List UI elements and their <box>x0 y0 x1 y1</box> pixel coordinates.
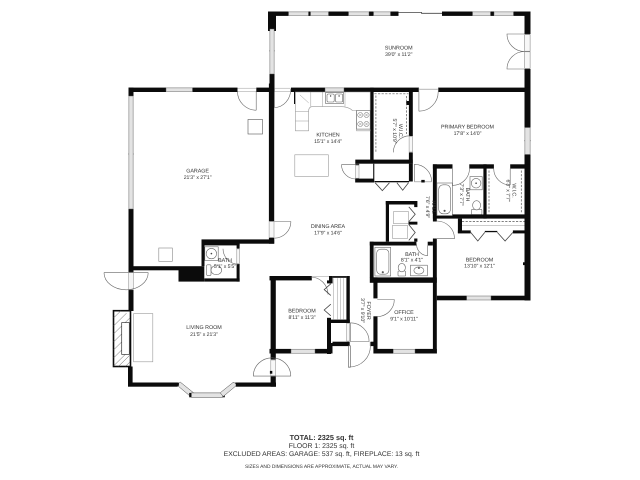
svg-text:17'8" x 14'0": 17'8" x 14'0" <box>454 131 482 137</box>
svg-text:39'0" x 11'2": 39'0" x 11'2" <box>385 52 413 58</box>
svg-text:8'11" x 11'3": 8'11" x 11'3" <box>288 315 315 321</box>
svg-text:GARAGE: GARAGE <box>186 169 209 175</box>
svg-text:BEDROOM: BEDROOM <box>466 257 494 263</box>
svg-text:9'1" x 10'11": 9'1" x 10'11" <box>390 317 418 323</box>
svg-text:17'9" x 14'6": 17'9" x 14'6" <box>314 230 342 236</box>
svg-text:7'3" x 7'7": 7'3" x 7'7" <box>458 183 464 205</box>
svg-text:BEDROOM: BEDROOM <box>288 309 316 315</box>
svg-text:21'3" x 27'1": 21'3" x 27'1" <box>184 175 212 181</box>
svg-text:DINING AREA: DINING AREA <box>311 224 346 230</box>
svg-text:EXCLUDED AREAS: GARAGE: 537 sq: EXCLUDED AREAS: GARAGE: 537 sq. ft, FIRE… <box>224 451 420 458</box>
svg-text:FLOOR 1: 2325 sq. ft: FLOOR 1: 2325 sq. ft <box>289 443 355 450</box>
svg-text:21'5" x 21'3": 21'5" x 21'3" <box>190 332 218 338</box>
svg-text:5'1" x 5'5": 5'1" x 5'5" <box>214 264 236 270</box>
svg-text:LIVING ROOM: LIVING ROOM <box>186 325 222 331</box>
svg-text:15'1" x 14'4": 15'1" x 14'4" <box>314 139 342 145</box>
svg-text:TOTAL: 2325 sq. ft: TOTAL: 2325 sq. ft <box>290 433 354 442</box>
svg-text:SUNROOM: SUNROOM <box>385 46 413 52</box>
svg-text:3'7" x 9'10": 3'7" x 9'10" <box>359 298 365 323</box>
svg-text:6'3" x 7'7": 6'3" x 7'7" <box>505 179 511 201</box>
svg-text:KITCHEN: KITCHEN <box>316 133 339 139</box>
svg-text:5'7" x 10'9": 5'7" x 10'9" <box>391 119 397 144</box>
svg-text:13'10" x 12'1": 13'10" x 12'1" <box>464 264 495 270</box>
svg-text:PRIMARY BEDROOM: PRIMARY BEDROOM <box>441 124 495 130</box>
svg-text:SIZES AND DIMENSIONS ARE APPRO: SIZES AND DIMENSIONS ARE APPROXIMATE, AC… <box>245 464 398 470</box>
svg-text:7'6" x 4'9": 7'6" x 4'9" <box>424 196 430 218</box>
svg-text:8'1" x 4'1": 8'1" x 4'1" <box>401 257 423 263</box>
svg-text:OFFICE: OFFICE <box>394 310 414 316</box>
